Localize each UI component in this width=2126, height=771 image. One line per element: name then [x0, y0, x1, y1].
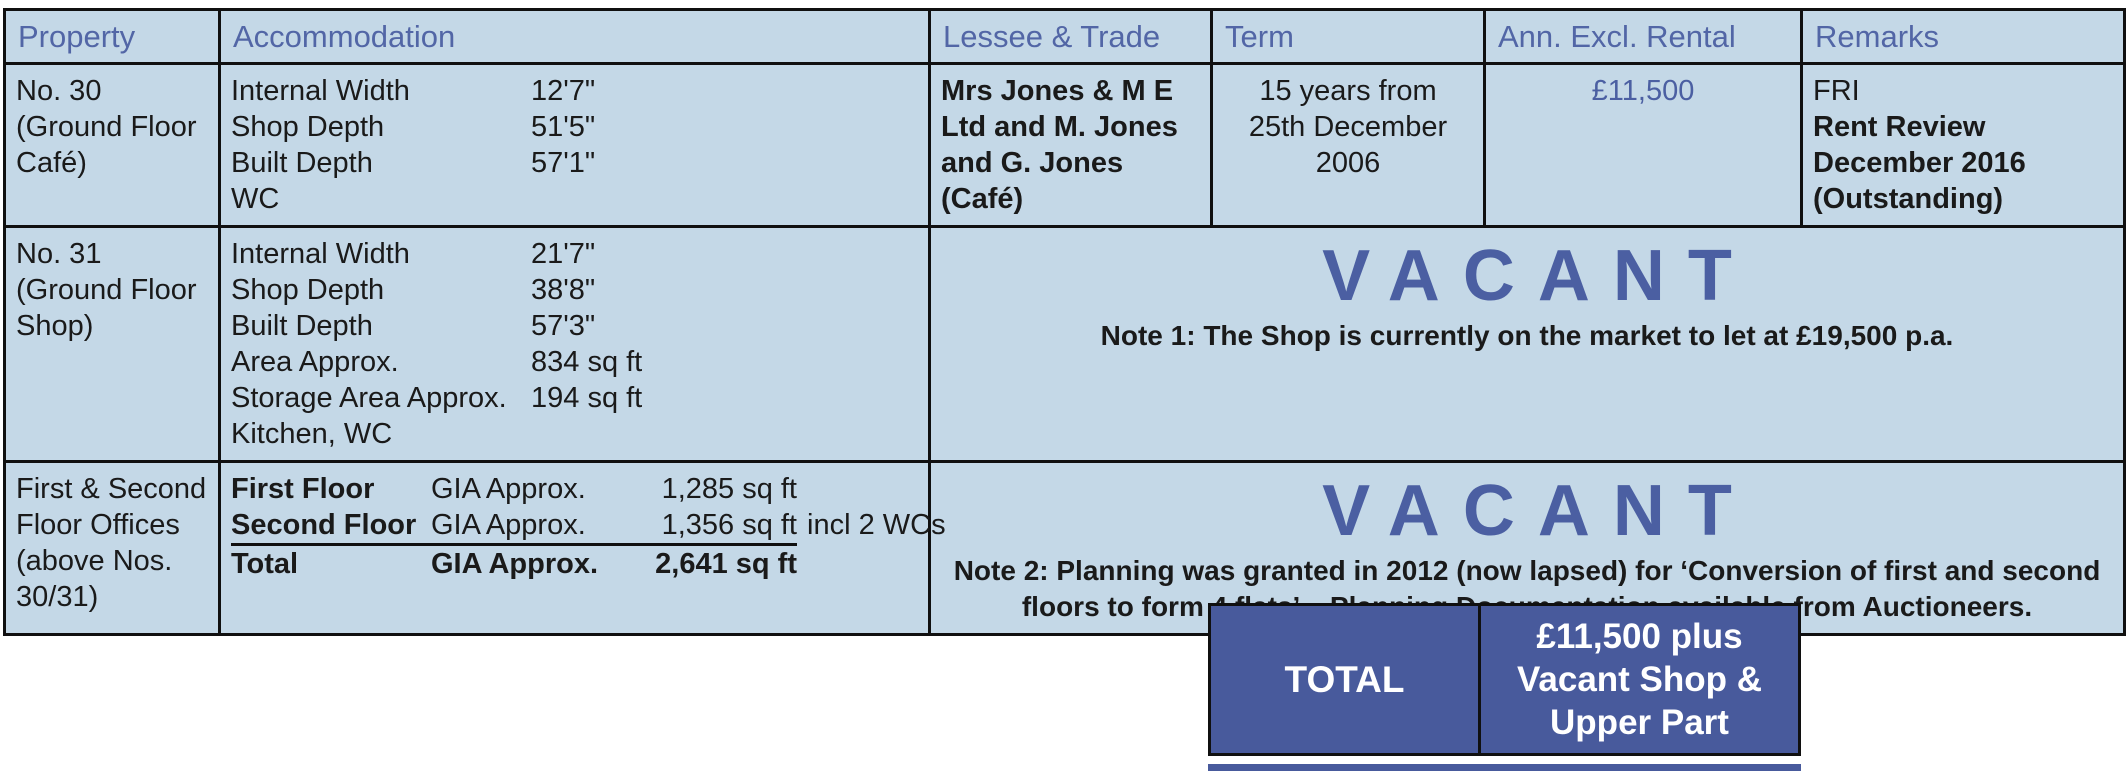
accommodation-labels: Internal Width Shop Depth Built Depth Ar…: [231, 236, 531, 452]
accommodation-cell: First Floor GIA Approx. 1,285 sq ft Seco…: [220, 462, 930, 635]
floor-label: Second Floor: [231, 507, 431, 543]
accommodation-total-line: Total GIA Approx. 2,641 sq ft: [231, 546, 918, 582]
header-property: Property: [5, 10, 220, 64]
floor-label: First Floor: [231, 471, 431, 507]
remarks-plain: FRI: [1813, 73, 2113, 109]
header-lessee-trade: Lessee & Trade: [930, 10, 1212, 64]
table-row-no-31: No. 31 (Ground Floor Shop) Internal Widt…: [5, 227, 2125, 462]
accommodation-line: Second Floor GIA Approx. 1,356 sq ft inc…: [231, 507, 918, 546]
accommodation-values: 21'7" 38'8" 57'3" 834 sq ft 194 sq ft: [531, 236, 642, 452]
term-cell: 15 years from 25th December 2006: [1212, 64, 1485, 227]
total-row: TOTAL £11,500 plus Vacant Shop & Upper P…: [1208, 603, 1801, 756]
property-cell: No. 30 (Ground Floor Café): [5, 64, 220, 227]
gia-value: 2,641 sq ft: [647, 546, 797, 582]
header-term: Term: [1212, 10, 1485, 64]
property-cell: No. 31 (Ground Floor Shop): [5, 227, 220, 462]
accommodation-values: 12'7" 51'5" 57'1": [531, 73, 595, 217]
property-cell: First & Second Floor Offices (above Nos.…: [5, 462, 220, 635]
gia-value: 1,356 sq ft: [647, 507, 797, 543]
header-remarks: Remarks: [1802, 10, 2125, 64]
next-row-strip: [1208, 764, 1801, 771]
gia-label: GIA Approx.: [431, 507, 647, 543]
gia-label: GIA Approx.: [431, 546, 647, 582]
gia-value-suffix: incl 2 WCs: [797, 507, 946, 546]
total-value: £11,500 plus Vacant Shop & Upper Part: [1481, 606, 1798, 753]
accommodation-line: First Floor GIA Approx. 1,285 sq ft: [231, 471, 918, 507]
remarks-cell: FRI Rent Review December 2016 (Outstandi…: [1802, 64, 2125, 227]
accommodation-labels: Internal Width Shop Depth Built Depth WC: [231, 73, 531, 217]
vacant-note-1: Note 1: The Shop is currently on the mar…: [941, 318, 2113, 354]
floor-label: Total: [231, 546, 431, 582]
gia-value: 1,285 sq ft: [647, 471, 797, 507]
header-row: Property Accommodation Lessee & Trade Te…: [5, 10, 2125, 64]
tenancy-schedule-page: Property Accommodation Lessee & Trade Te…: [0, 0, 2126, 771]
lessee-trade-cell: Mrs Jones & M E Ltd and M. Jones and G. …: [930, 64, 1212, 227]
header-rental: Ann. Excl. Rental: [1485, 10, 1802, 64]
gia-label: GIA Approx.: [431, 471, 647, 507]
remarks-bold: Rent Review December 2016 (Outstanding): [1813, 109, 2113, 217]
table-row-no-30: No. 30 (Ground Floor Café) Internal Widt…: [5, 64, 2125, 227]
tenancy-schedule-table: Property Accommodation Lessee & Trade Te…: [3, 8, 2126, 636]
vacant-cell: VACANT Note 1: The Shop is currently on …: [930, 227, 2125, 462]
vacant-status: VACANT: [941, 236, 2113, 316]
accommodation-cell: Internal Width Shop Depth Built Depth Ar…: [220, 227, 930, 462]
table-row-offices: First & Second Floor Offices (above Nos.…: [5, 462, 2125, 635]
accommodation-cell: Internal Width Shop Depth Built Depth WC…: [220, 64, 930, 227]
vacant-status: VACANT: [941, 471, 2113, 551]
annual-rental-cell: £11,500: [1485, 64, 1802, 227]
total-label: TOTAL: [1211, 606, 1481, 753]
header-accommodation: Accommodation: [220, 10, 930, 64]
